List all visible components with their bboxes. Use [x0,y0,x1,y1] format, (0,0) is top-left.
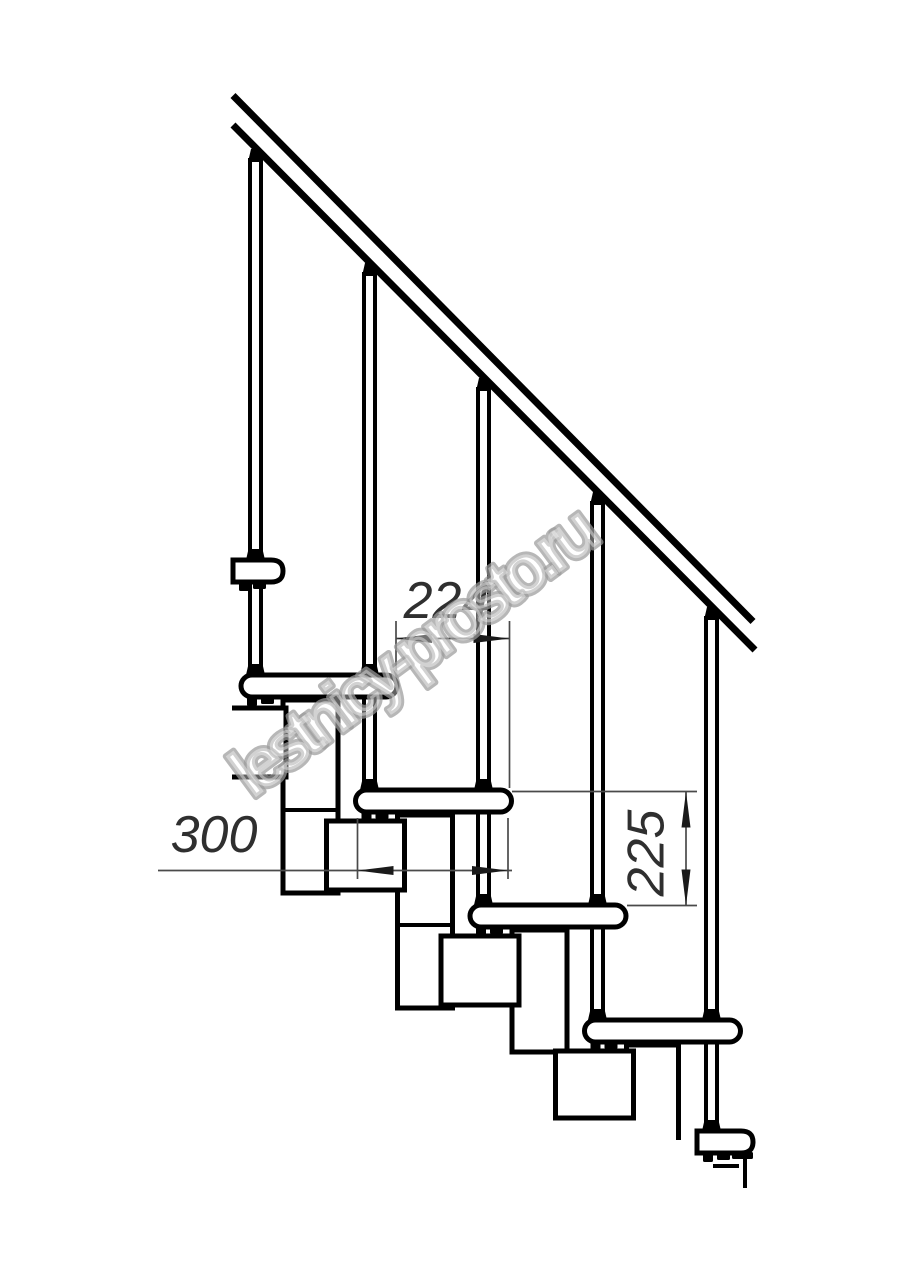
tread-4-mount [605,1042,618,1049]
floor-mount-block [697,1131,753,1153]
baluster-4 [588,492,607,1020]
upper-floor-tread [233,560,283,582]
tread-3-mount [490,927,503,934]
floor-mount-tab [732,1152,753,1159]
support-box-3 [441,936,519,1005]
floor-mount-tab [703,1153,713,1162]
baluster-1 [246,149,265,675]
upper-floor-tread-mount [253,582,266,589]
tread-3 [470,905,626,927]
dimension-label-300: 300 [171,806,258,864]
tread-3-mount [476,927,486,936]
staircase-technical-drawing: 224 300 225 lestnicy-prosto.ru [0,0,914,1280]
dimension-225-arrow-up [682,792,691,828]
support-box-4 [556,1051,634,1118]
tread-1-mount [247,697,257,706]
baluster-1-post [250,160,261,675]
tread-2-mount [362,812,372,821]
tread-2-mount [376,812,389,819]
support-box-2 [327,821,405,890]
tread-4-mount [591,1042,601,1051]
tread-2 [356,790,512,812]
drawing-svg: 224 300 225 lestnicy-prosto.ru [0,0,914,1280]
watermark-text: lestnicy-prosto.ru [215,491,611,812]
dimension-225-arrow-down [682,870,691,906]
upper-floor-tread-mount [239,582,249,591]
baluster-5 [702,607,721,1131]
floor-mount-tab [717,1153,730,1160]
tread-4 [585,1020,741,1042]
baluster-4-post [592,503,603,1020]
baluster-5-post [706,618,717,1131]
tread-1-mount [261,697,274,704]
dimension-label-225: 225 [618,809,676,898]
